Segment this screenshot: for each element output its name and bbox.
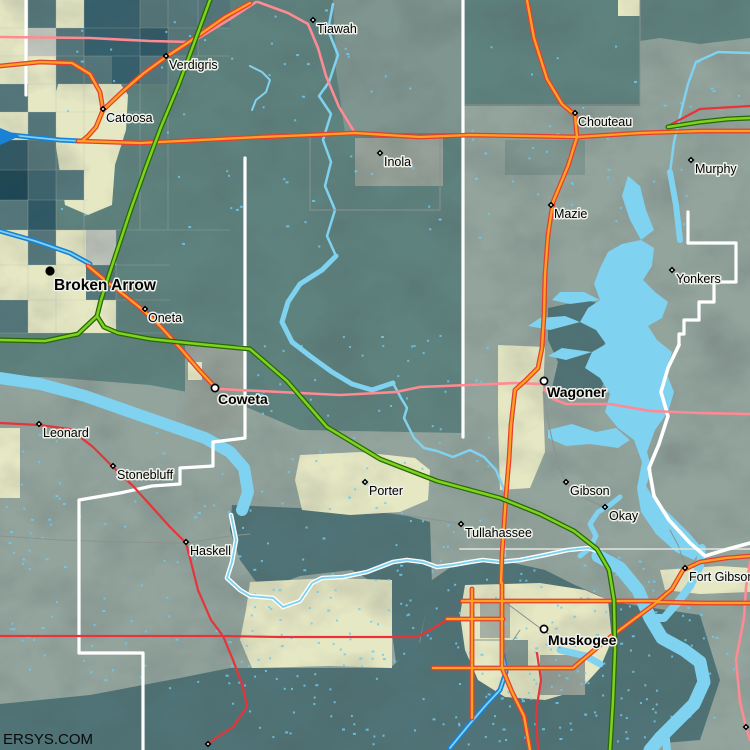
town-label: Muskogee — [548, 632, 617, 648]
town-label: Fort Gibson — [689, 570, 750, 584]
town-label: Broken Arrow — [54, 277, 157, 294]
map-canvas[interactable]: TiawahVerdigrisCatoosaChouteauInolaMurph… — [0, 0, 750, 750]
town-label: Gibson — [570, 484, 610, 498]
town-label: Inola — [384, 155, 411, 169]
town-label: Haskell — [190, 544, 231, 558]
town-label: Verdigris — [169, 58, 218, 72]
city-dot-marker — [45, 266, 54, 275]
town-label: Coweta — [218, 391, 268, 407]
arkansas-branch-south — [665, 730, 667, 750]
town-label: Oneta — [148, 311, 182, 325]
town-label: Leonard — [43, 426, 89, 440]
town-label: Yonkers — [676, 272, 721, 286]
town-label: Chouteau — [578, 115, 632, 129]
town-label: Porter — [369, 484, 403, 498]
town-label: Okay — [609, 509, 639, 523]
town-label: Stonebluff — [117, 468, 174, 482]
town-label: Tullahassee — [465, 526, 532, 540]
town-label: Wagoner — [547, 384, 607, 400]
map-container: TiawahVerdigrisCatoosaChouteauInolaMurph… — [0, 0, 750, 750]
town-label: Catoosa — [106, 111, 153, 125]
town-label: Mazie — [554, 207, 587, 221]
town-label: Tiawah — [317, 22, 357, 36]
city-circle-marker — [540, 625, 547, 632]
town-label: Murphy — [695, 162, 737, 176]
watermark: ERSYS.COM — [3, 731, 93, 748]
